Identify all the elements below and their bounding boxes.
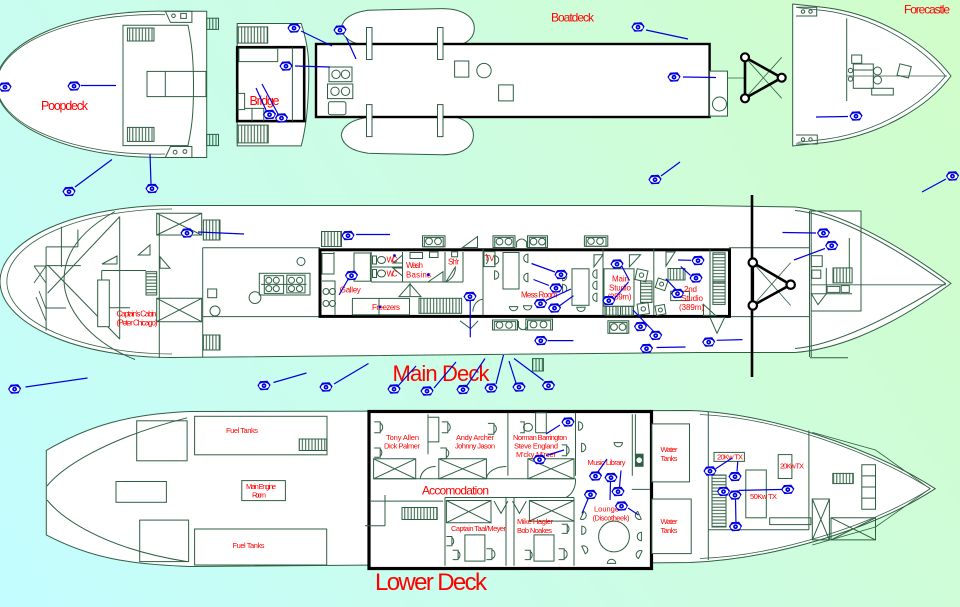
svg-text:Poopdeck: Poopdeck <box>41 99 89 113</box>
svg-text:20Kw TX: 20Kw TX <box>717 453 743 462</box>
svg-text:Fuel Tanks: Fuel Tanks <box>233 541 265 550</box>
svg-text:(389m): (389m) <box>679 303 704 312</box>
svg-text:Accomodation: Accomodation <box>422 484 489 498</box>
svg-text:Forecastle: Forecastle <box>904 3 950 17</box>
svg-text:Tanks: Tanks <box>661 526 678 535</box>
svg-text:Studio: Studio <box>681 294 704 303</box>
svg-text:Wash: Wash <box>406 261 423 270</box>
svg-text:Captain's Cabin: Captain's Cabin <box>117 310 157 319</box>
svg-text:(Discotheek): (Discotheek) <box>593 514 631 523</box>
svg-text:(Peter Chicago): (Peter Chicago) <box>117 319 158 328</box>
svg-text:Galley: Galley <box>340 286 361 295</box>
svg-text:Room: Room <box>252 491 266 500</box>
svg-text:Captain Taal/Meyer: Captain Taal/Meyer <box>451 524 507 533</box>
svg-text:Tanks: Tanks <box>661 454 678 463</box>
svg-text:WC: WC <box>387 256 398 265</box>
svg-text:Lower Deck: Lower Deck <box>375 569 488 596</box>
svg-text:Freezers: Freezers <box>372 303 400 312</box>
svg-text:Sh'r: Sh'r <box>448 258 459 267</box>
svg-text:2nd: 2nd <box>684 285 697 294</box>
svg-text:TV: TV <box>485 254 496 263</box>
svg-text:Water: Water <box>661 517 679 526</box>
svg-text:Water: Water <box>661 445 679 454</box>
svg-text:Dick Palmer: Dick Palmer <box>384 442 421 451</box>
svg-text:WC: WC <box>387 270 398 279</box>
svg-text:Bob Noakes: Bob Noakes <box>517 526 552 535</box>
svg-text:50Kw TX: 50Kw TX <box>750 492 777 501</box>
svg-text:Main Deck: Main Deck <box>393 361 491 386</box>
svg-text:Johnny Jason: Johnny Jason <box>455 442 495 451</box>
svg-text:Boatdeck: Boatdeck <box>551 11 595 25</box>
svg-text:Mike Hagler: Mike Hagler <box>517 517 554 526</box>
svg-text:Fuel Tanks: Fuel Tanks <box>226 426 258 435</box>
svg-text:20Kw TX: 20Kw TX <box>780 462 804 471</box>
